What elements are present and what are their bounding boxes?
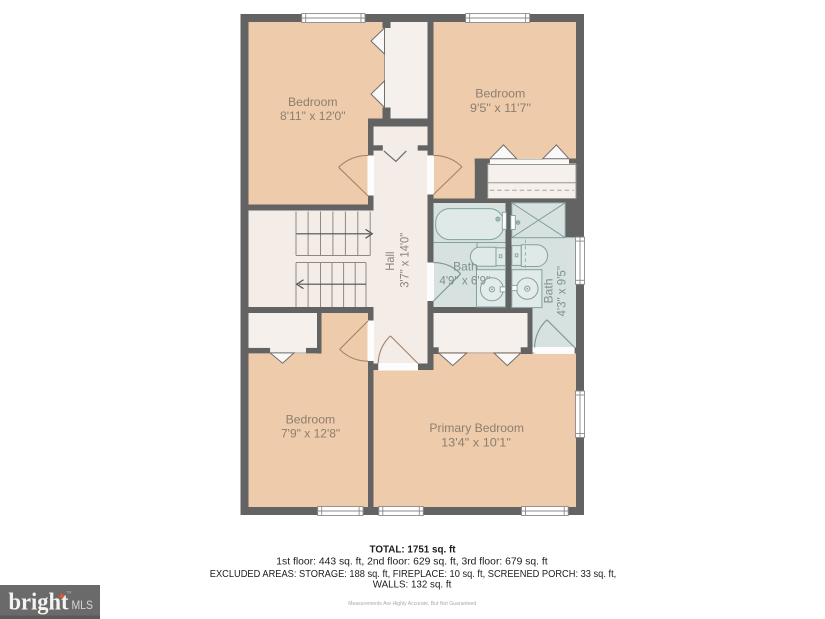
- svg-text:EXCLUDED AREAS: STORAGE: 188 s: EXCLUDED AREAS: STORAGE: 188 sq. ft, FIR…: [210, 569, 617, 580]
- svg-text:4'9" x 6'9": 4'9" x 6'9": [439, 273, 490, 287]
- svg-text:Bath: Bath: [541, 279, 555, 304]
- svg-text:13'4" x 10'1": 13'4" x 10'1": [441, 436, 511, 450]
- svg-text:1st floor: 443 sq. ft, 2nd flo: 1st floor: 443 sq. ft, 2nd floor: 629 sq…: [276, 556, 548, 567]
- svg-text:TM: TM: [66, 591, 71, 595]
- svg-text:MLS: MLS: [72, 600, 94, 612]
- svg-text:3'7" x 14'0": 3'7" x 14'0": [397, 233, 411, 288]
- svg-text:8'11" x 12'0": 8'11" x 12'0": [280, 109, 346, 123]
- svg-text:WALLS: 132 sq. ft: WALLS: 132 sq. ft: [373, 580, 452, 591]
- svg-text:Primary Bedroom: Primary Bedroom: [429, 421, 524, 435]
- svg-text:Bedroom: Bedroom: [475, 86, 525, 100]
- svg-text:7'9" x 12'8": 7'9" x 12'8": [281, 427, 340, 441]
- svg-text:Bedroom: Bedroom: [286, 412, 336, 426]
- svg-text:9'5" x 11'7": 9'5" x 11'7": [470, 101, 531, 115]
- svg-text:4'3" x 9'5": 4'3" x 9'5": [554, 266, 568, 317]
- svg-text:Bedroom: Bedroom: [288, 95, 338, 109]
- svg-text:TOTAL: 1751 sq. ft: TOTAL: 1751 sq. ft: [370, 544, 456, 556]
- svg-text:Hall: Hall: [383, 252, 397, 271]
- svg-text:Bath: Bath: [453, 259, 478, 273]
- svg-text:bright: bright: [9, 589, 70, 616]
- svg-text:Measurements Are Highly Accura: Measurements Are Highly Accurate, But No…: [348, 601, 476, 607]
